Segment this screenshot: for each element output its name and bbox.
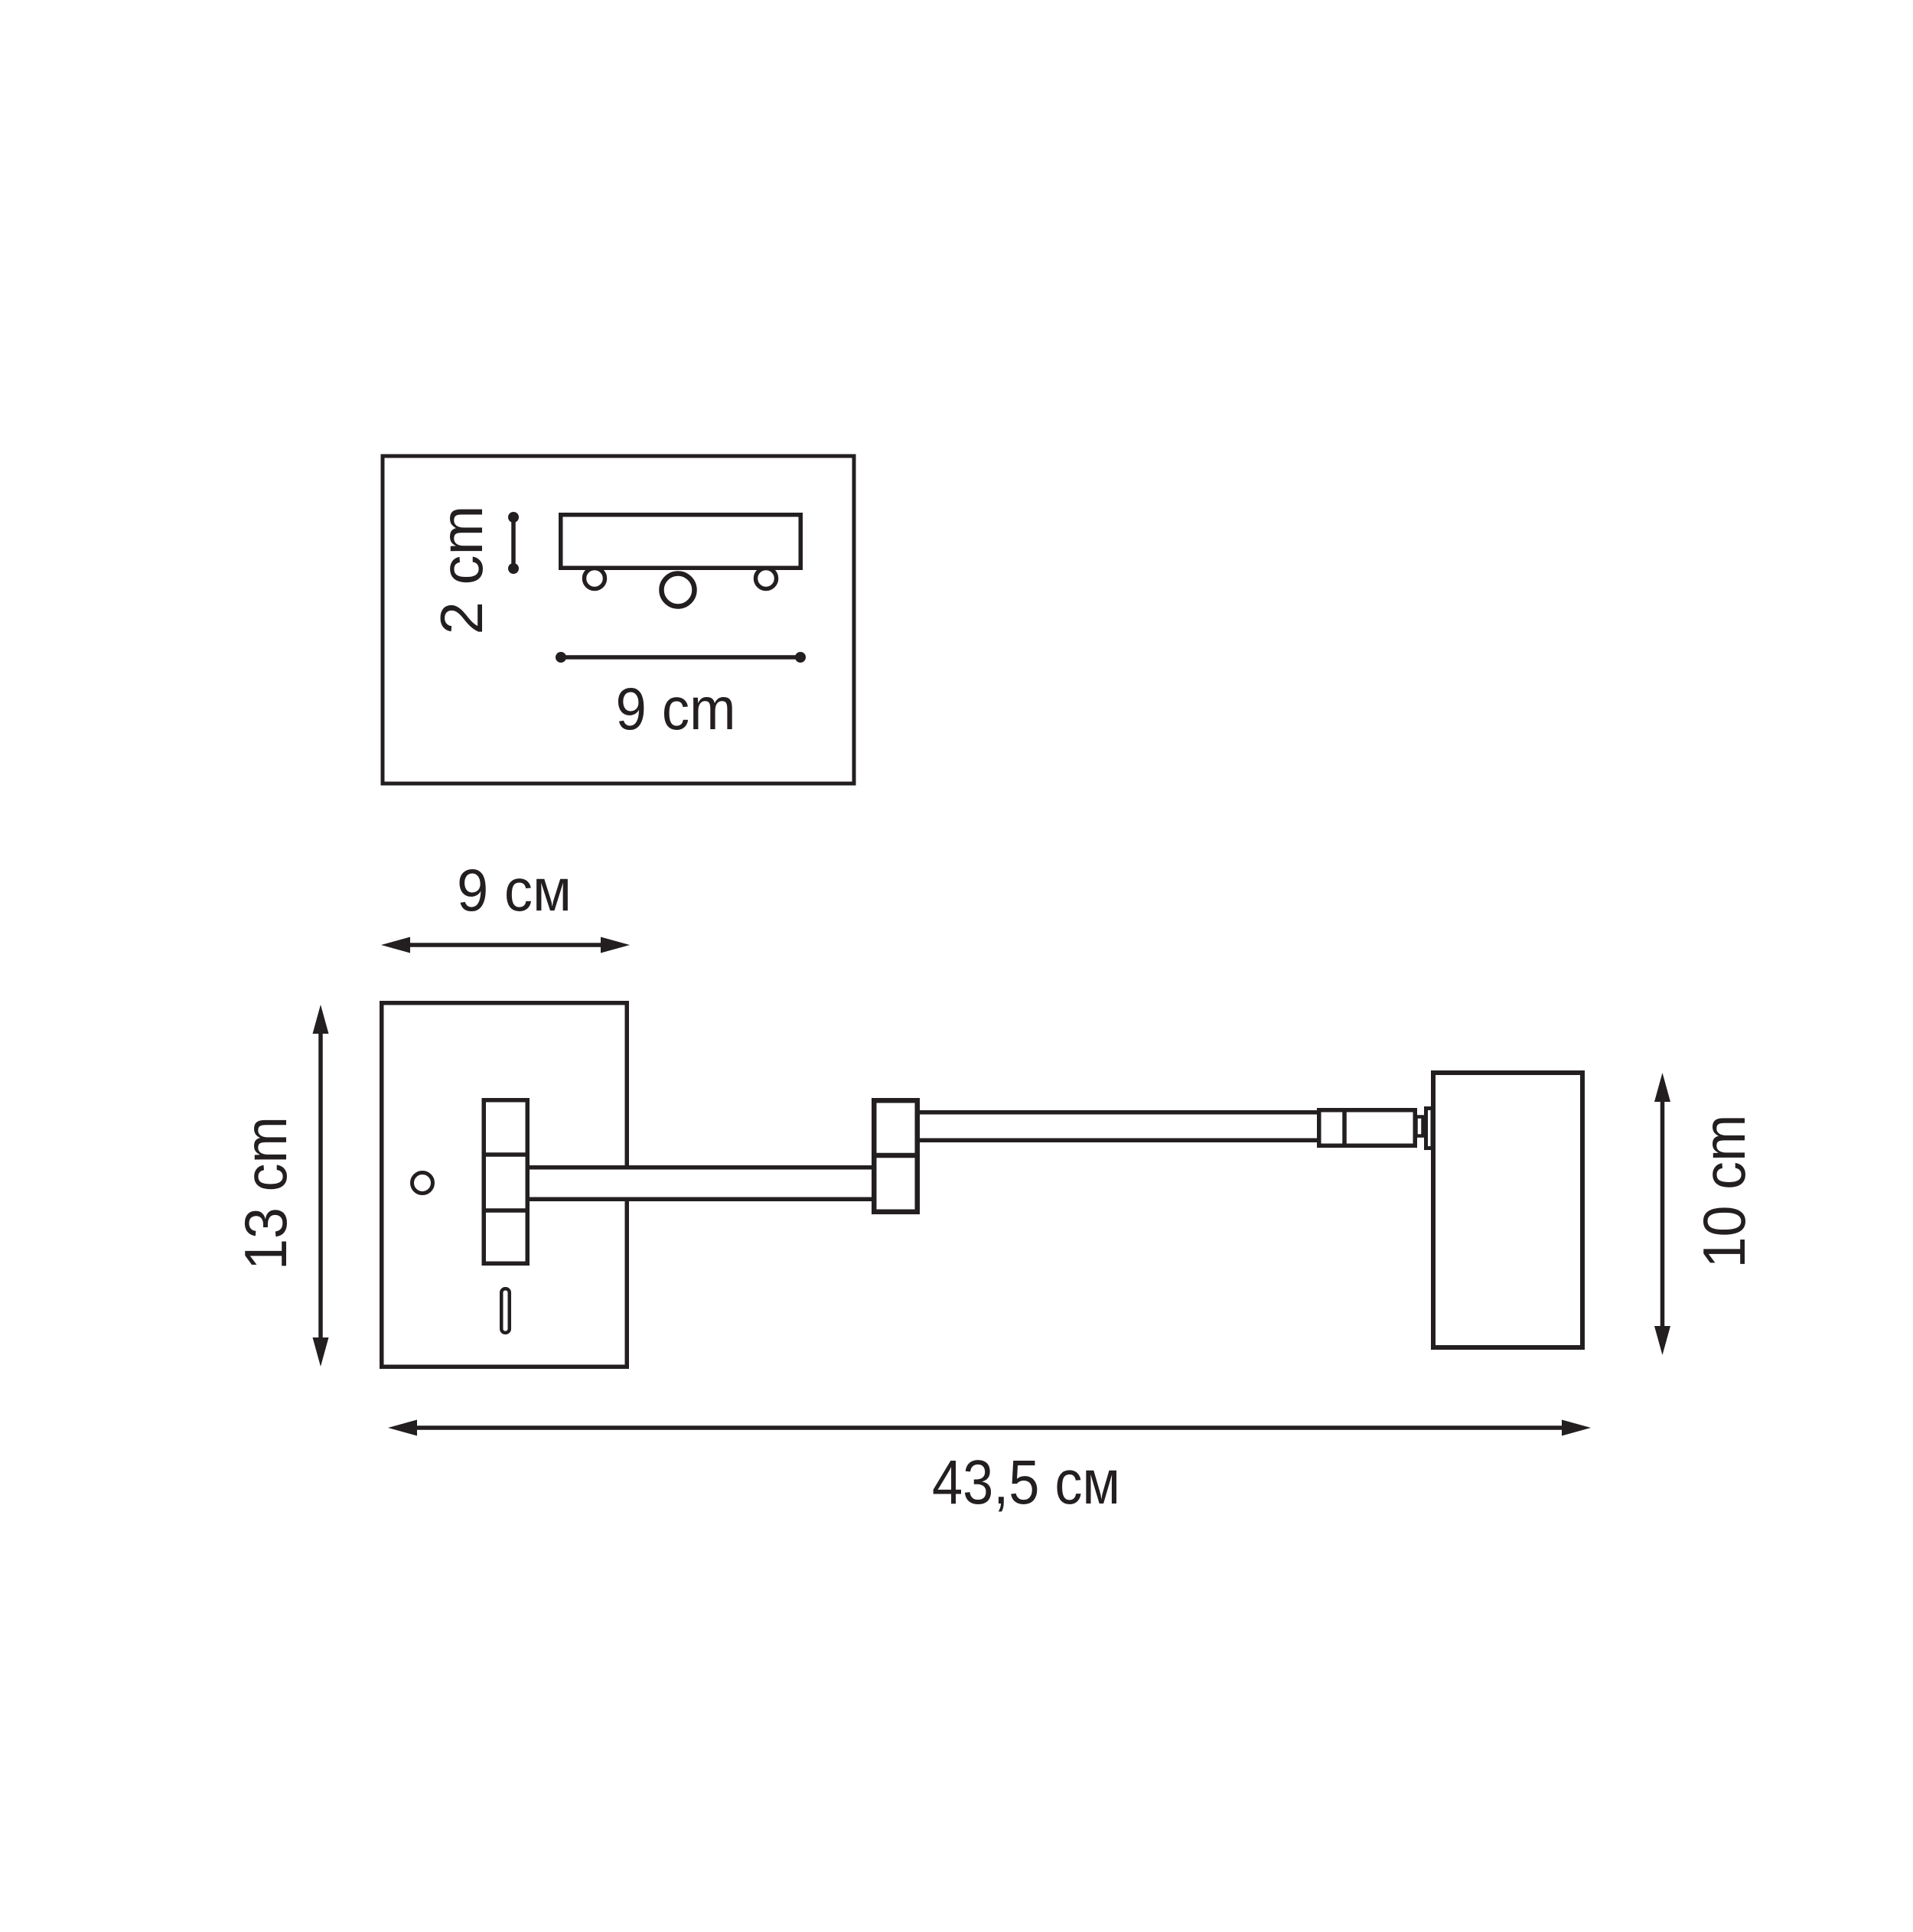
svg-text:13 cm: 13 cm — [232, 1116, 299, 1270]
svg-text:10 cm: 10 cm — [1690, 1115, 1758, 1269]
svg-text:43,5 см: 43,5 см — [932, 1448, 1120, 1517]
svg-text:2 cm: 2 cm — [428, 505, 495, 634]
svg-text:9 cm: 9 cm — [616, 675, 736, 742]
svg-text:9 см: 9 см — [457, 856, 572, 924]
